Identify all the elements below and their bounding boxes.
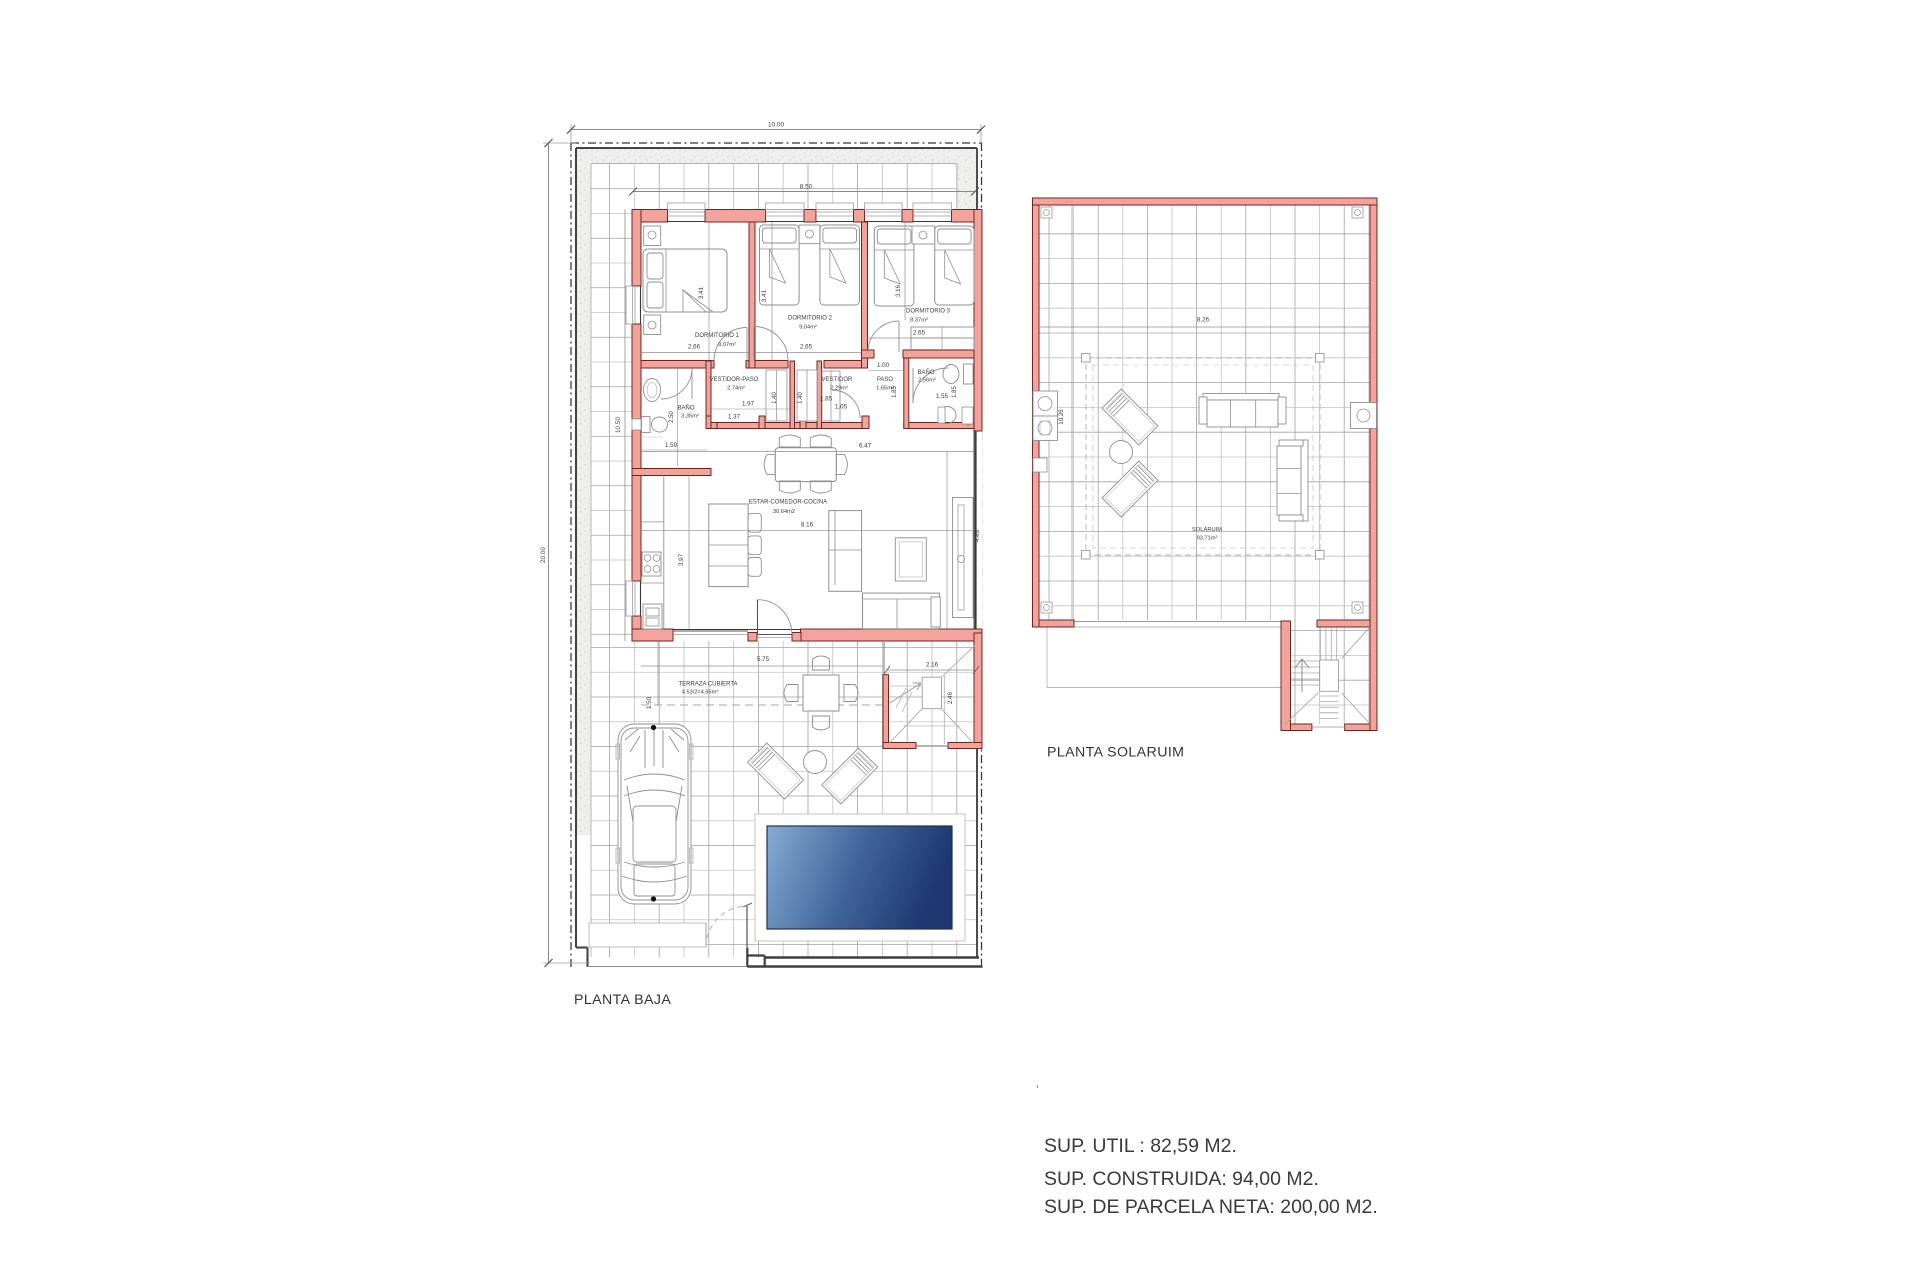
svg-text:SUP. CONSTRUIDA: 94,00 M2.: SUP. CONSTRUIDA: 94,00 M2.: [1044, 1168, 1319, 1190]
svg-text:PLANTA SOLARUIM: PLANTA SOLARUIM: [1047, 745, 1184, 761]
svg-text:DORMITORIO 2: DORMITORIO 2: [788, 316, 833, 322]
svg-text:TERRAZA CUBIERTA: TERRAZA CUBIERTA: [678, 682, 737, 688]
svg-text:93,71m²: 93,71m²: [1197, 536, 1218, 542]
svg-text:4.53/2=4.65m²: 4.53/2=4.65m²: [682, 690, 718, 696]
svg-text:10.00: 10.00: [768, 122, 784, 129]
svg-text:6.47: 6.47: [859, 443, 872, 450]
svg-text:1.00: 1.00: [877, 362, 890, 369]
svg-text:BAÑO: BAÑO: [917, 369, 934, 376]
svg-text:PLANTA BAJA: PLANTA BAJA: [574, 992, 671, 1008]
svg-text:2,56m²: 2,56m²: [918, 378, 936, 384]
svg-text:3,35m²: 3,35m²: [681, 414, 699, 420]
svg-text:8.16: 8.16: [801, 522, 814, 529]
svg-text:2.66: 2.66: [688, 344, 701, 351]
svg-text:BAÑO: BAÑO: [677, 405, 694, 412]
svg-text:VESTIDOR: VESTIDOR: [822, 377, 853, 383]
svg-text:3.16: 3.16: [895, 284, 902, 297]
svg-text:2.50: 2.50: [669, 411, 675, 423]
svg-text:9,07m²: 9,07m²: [718, 342, 736, 348]
svg-text:1.85: 1.85: [952, 386, 958, 398]
svg-text:2,74m²: 2,74m²: [727, 386, 745, 392]
svg-text:ESTAR-COMEDOR-COCINA: ESTAR-COMEDOR-COCINA: [749, 500, 827, 506]
svg-text:10.50: 10.50: [615, 417, 622, 433]
svg-text:3.41: 3.41: [761, 289, 768, 302]
svg-text:2,29m²: 2,29m²: [830, 386, 848, 392]
svg-text:SUP. DE PARCELA NETA: 200,00 M: SUP. DE PARCELA NETA: 200,00 M2.: [1044, 1196, 1378, 1218]
svg-text:3.97: 3.97: [678, 553, 685, 566]
svg-text:1.85: 1.85: [892, 386, 898, 398]
svg-text:’: ’: [1036, 1084, 1038, 1096]
svg-text:10.26: 10.26: [1058, 409, 1065, 425]
svg-text:1.50: 1.50: [646, 696, 653, 709]
svg-text:9,04m²: 9,04m²: [799, 325, 817, 331]
svg-text:5.75: 5.75: [757, 656, 770, 663]
svg-text:VESTIDOR-PASO: VESTIDOR-PASO: [710, 377, 759, 383]
svg-text:SOLARUIM: SOLARUIM: [1192, 527, 1222, 533]
svg-text:1.59: 1.59: [665, 442, 678, 449]
svg-text:DORMITORIO 3: DORMITORIO 3: [906, 309, 951, 315]
svg-text:2.65: 2.65: [800, 344, 813, 351]
svg-text:1.55: 1.55: [936, 393, 949, 400]
svg-text:PASO: PASO: [877, 377, 894, 383]
svg-text:1.97: 1.97: [742, 401, 755, 408]
svg-text:30,64m2: 30,64m2: [773, 509, 795, 515]
svg-text:1.40: 1.40: [798, 392, 804, 404]
svg-text:SUP. UTIL : 82,59 M2.: SUP. UTIL : 82,59 M2.: [1044, 1135, 1237, 1157]
svg-text:8.50: 8.50: [800, 184, 813, 191]
svg-text:1.05: 1.05: [835, 404, 848, 411]
svg-text:1.85: 1.85: [820, 396, 833, 403]
svg-text:4.89: 4.89: [974, 529, 981, 542]
svg-text:1.40: 1.40: [772, 392, 778, 404]
svg-text:8,37m²: 8,37m²: [910, 318, 928, 324]
svg-text:3.41: 3.41: [698, 286, 705, 299]
svg-text:DORMITORIO 1: DORMITORIO 1: [695, 333, 740, 339]
svg-text:2.65: 2.65: [913, 330, 926, 337]
svg-text:2.46: 2.46: [947, 691, 954, 704]
svg-text:8.26: 8.26: [1197, 317, 1210, 324]
svg-text:20.00: 20.00: [540, 547, 547, 563]
svg-text:2.16: 2.16: [926, 662, 939, 669]
svg-text:1.37: 1.37: [728, 414, 741, 421]
